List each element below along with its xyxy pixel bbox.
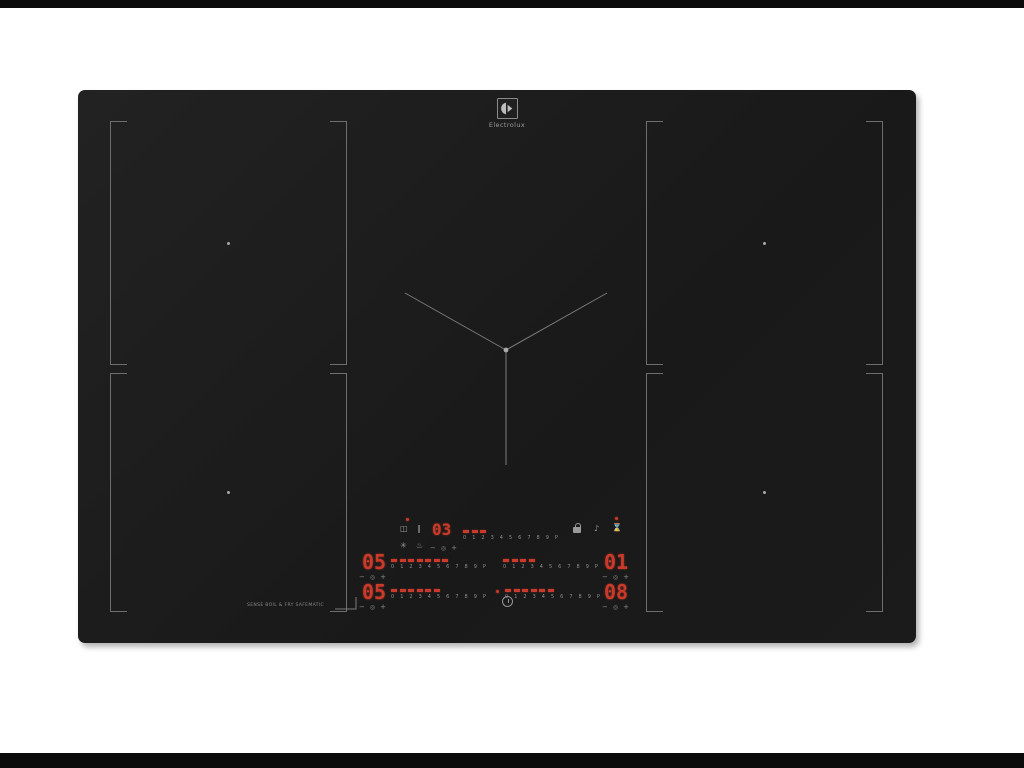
minus-button[interactable]: −: [430, 545, 436, 552]
sound-icon[interactable]: ♪: [594, 525, 599, 533]
power-indicator-dot: [496, 590, 499, 593]
feature-label: SENSE BOIL & FRY SAFEMATIC: [247, 603, 324, 608]
hob2hood-icon[interactable]: ✳: [400, 542, 407, 550]
plus-button[interactable]: +: [623, 604, 629, 611]
timer-indicator-dot: [615, 517, 618, 520]
timer-slider[interactable]: 0123456789P: [463, 530, 558, 541]
power-slider-row1-right[interactable]: 0123456789P: [503, 559, 598, 570]
timer-icon[interactable]: ⌛: [612, 524, 622, 532]
minus-button[interactable]: −: [359, 604, 365, 611]
timer-adjust-controls[interactable]: − ◎ +: [430, 545, 457, 552]
electrolux-wordmark: Electrolux: [477, 121, 537, 129]
power-level-display-row1-left: 05: [362, 553, 386, 571]
zone-right-front[interactable]: [646, 373, 883, 612]
power-slider-row2-left[interactable]: 0123456789P: [391, 589, 486, 600]
plus-button[interactable]: +: [380, 604, 386, 611]
induction-hob-surface: Electrolux ◫ ∥ ✳ ♨ 03 −: [78, 90, 916, 643]
power-level-display-row2-left: 05: [362, 583, 386, 601]
zone-left-rear[interactable]: [110, 121, 347, 365]
zone-centre-dot: [763, 242, 766, 245]
top-letterbox-bar: [0, 0, 1024, 8]
plus-button[interactable]: +: [451, 545, 457, 552]
power-level-display-row2-right: 08: [604, 583, 628, 601]
bridge-icon[interactable]: ◫: [400, 525, 408, 533]
power-slider-row2-right[interactable]: 0123456789P: [505, 589, 600, 600]
zone-centre-dot: [763, 491, 766, 494]
zone-centre-dot: [227, 242, 230, 245]
pause-icon[interactable]: ∥: [417, 525, 421, 533]
select-button[interactable]: ◎: [370, 604, 375, 611]
status-indicator-dot: [406, 518, 409, 521]
zone-left-front[interactable]: [110, 373, 347, 612]
power-level-display-row1-right: 01: [604, 553, 628, 571]
lock-icon[interactable]: [573, 527, 581, 533]
power-slider-row1-left[interactable]: 0123456789P: [391, 559, 486, 570]
adjust-controls-row2-right[interactable]: − ◎ +: [602, 604, 629, 611]
select-button[interactable]: ◎: [441, 545, 446, 552]
electrolux-logo-icon: [497, 98, 518, 119]
select-button[interactable]: ◎: [613, 604, 618, 611]
adjust-controls-row2-left[interactable]: − ◎ +: [359, 604, 386, 611]
bottom-letterbox-bar: [0, 753, 1024, 768]
product-image: Electrolux ◫ ∥ ✳ ♨ 03 −: [0, 0, 1024, 768]
electrolux-logo: Electrolux: [477, 98, 537, 129]
zone-right-rear[interactable]: [646, 121, 883, 365]
minus-button[interactable]: −: [602, 604, 608, 611]
timer-display: 03: [432, 523, 451, 537]
zone-centre-dot: [227, 491, 230, 494]
sense-fry-icon[interactable]: ♨: [416, 542, 423, 550]
